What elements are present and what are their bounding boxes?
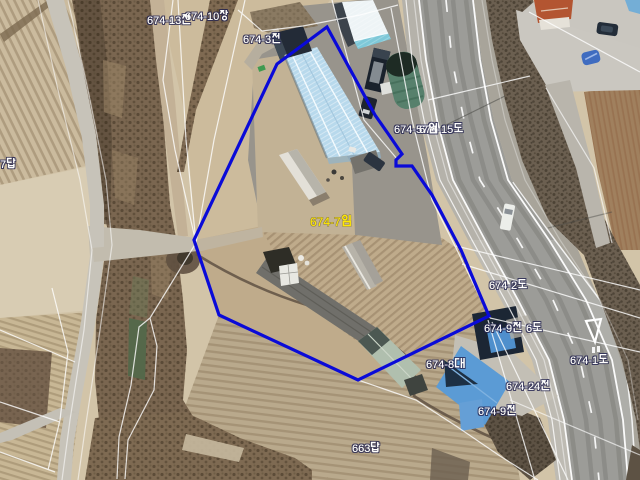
svg-text:663: 663 — [352, 443, 370, 455]
svg-text:674-1: 674-1 — [570, 355, 598, 367]
svg-text:674-9: 674-9 — [478, 406, 506, 418]
svg-text:674-3: 674-3 — [243, 34, 271, 46]
svg-text:674-24: 674-24 — [506, 381, 540, 393]
svg-text:674-15: 674-15 — [419, 124, 453, 136]
svg-text:6: 6 — [526, 323, 532, 335]
svg-text:674-9: 674-9 — [484, 323, 512, 335]
svg-text:674-7: 674-7 — [310, 215, 341, 229]
svg-text:674-13: 674-13 — [147, 15, 181, 27]
svg-text:7: 7 — [0, 159, 6, 171]
svg-text:674-10: 674-10 — [185, 11, 219, 23]
svg-text:674-2: 674-2 — [489, 280, 517, 292]
svg-text:674-8: 674-8 — [426, 359, 454, 371]
